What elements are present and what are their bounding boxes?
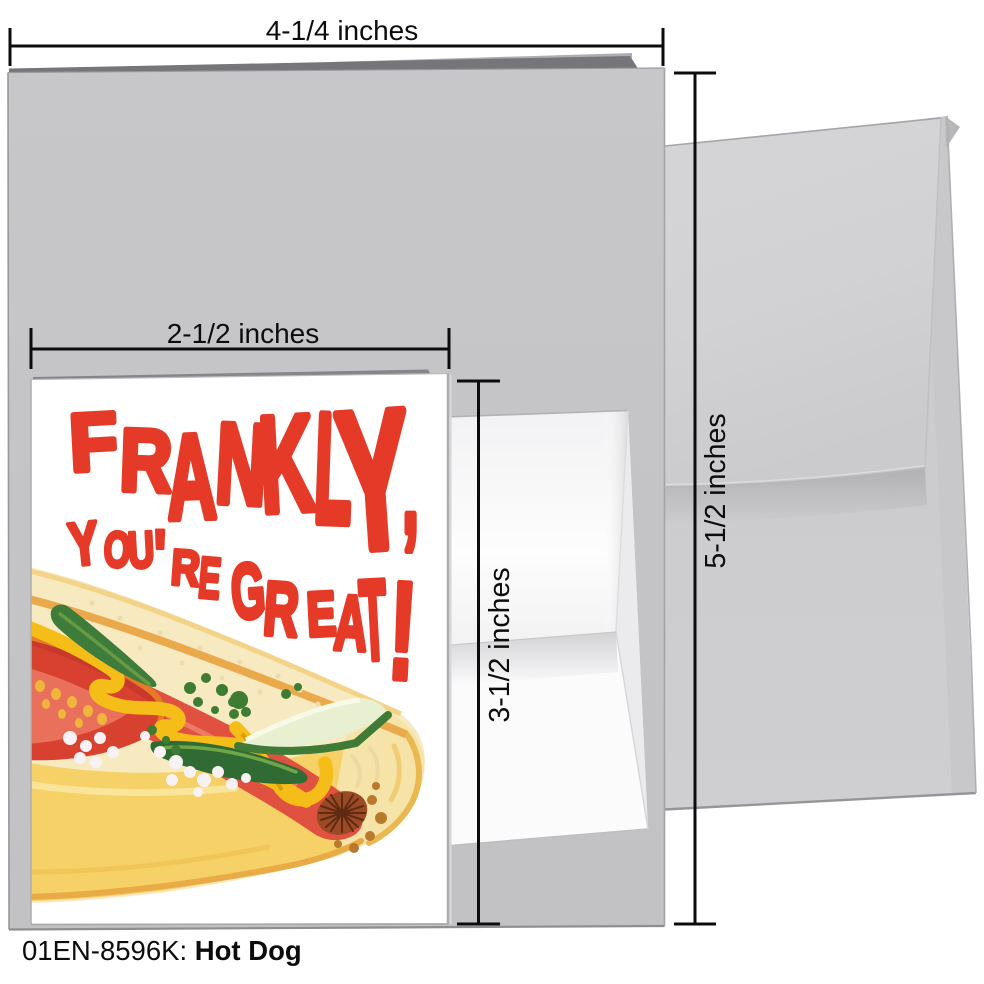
- svg-text:2-1/2 inches: 2-1/2 inches: [167, 318, 320, 349]
- svg-text:3-1/2 inches: 3-1/2 inches: [484, 567, 516, 722]
- svg-text:G: G: [228, 548, 268, 637]
- svg-text:U: U: [127, 522, 156, 580]
- svg-text:,: ,: [402, 425, 419, 559]
- svg-text:01EN-8596K: Hot Dog: 01EN-8596K: Hot Dog: [22, 935, 302, 966]
- svg-text:R: R: [169, 539, 202, 597]
- svg-text:5-1/2 inches: 5-1/2 inches: [700, 413, 732, 568]
- svg-text:E: E: [305, 580, 337, 650]
- svg-text:A: A: [164, 409, 218, 545]
- svg-text:': ': [153, 515, 167, 598]
- svg-text:K: K: [256, 388, 318, 542]
- svg-text:4-1/4 inches: 4-1/4 inches: [266, 15, 419, 46]
- svg-text:F: F: [67, 396, 120, 489]
- svg-text:R: R: [261, 565, 302, 653]
